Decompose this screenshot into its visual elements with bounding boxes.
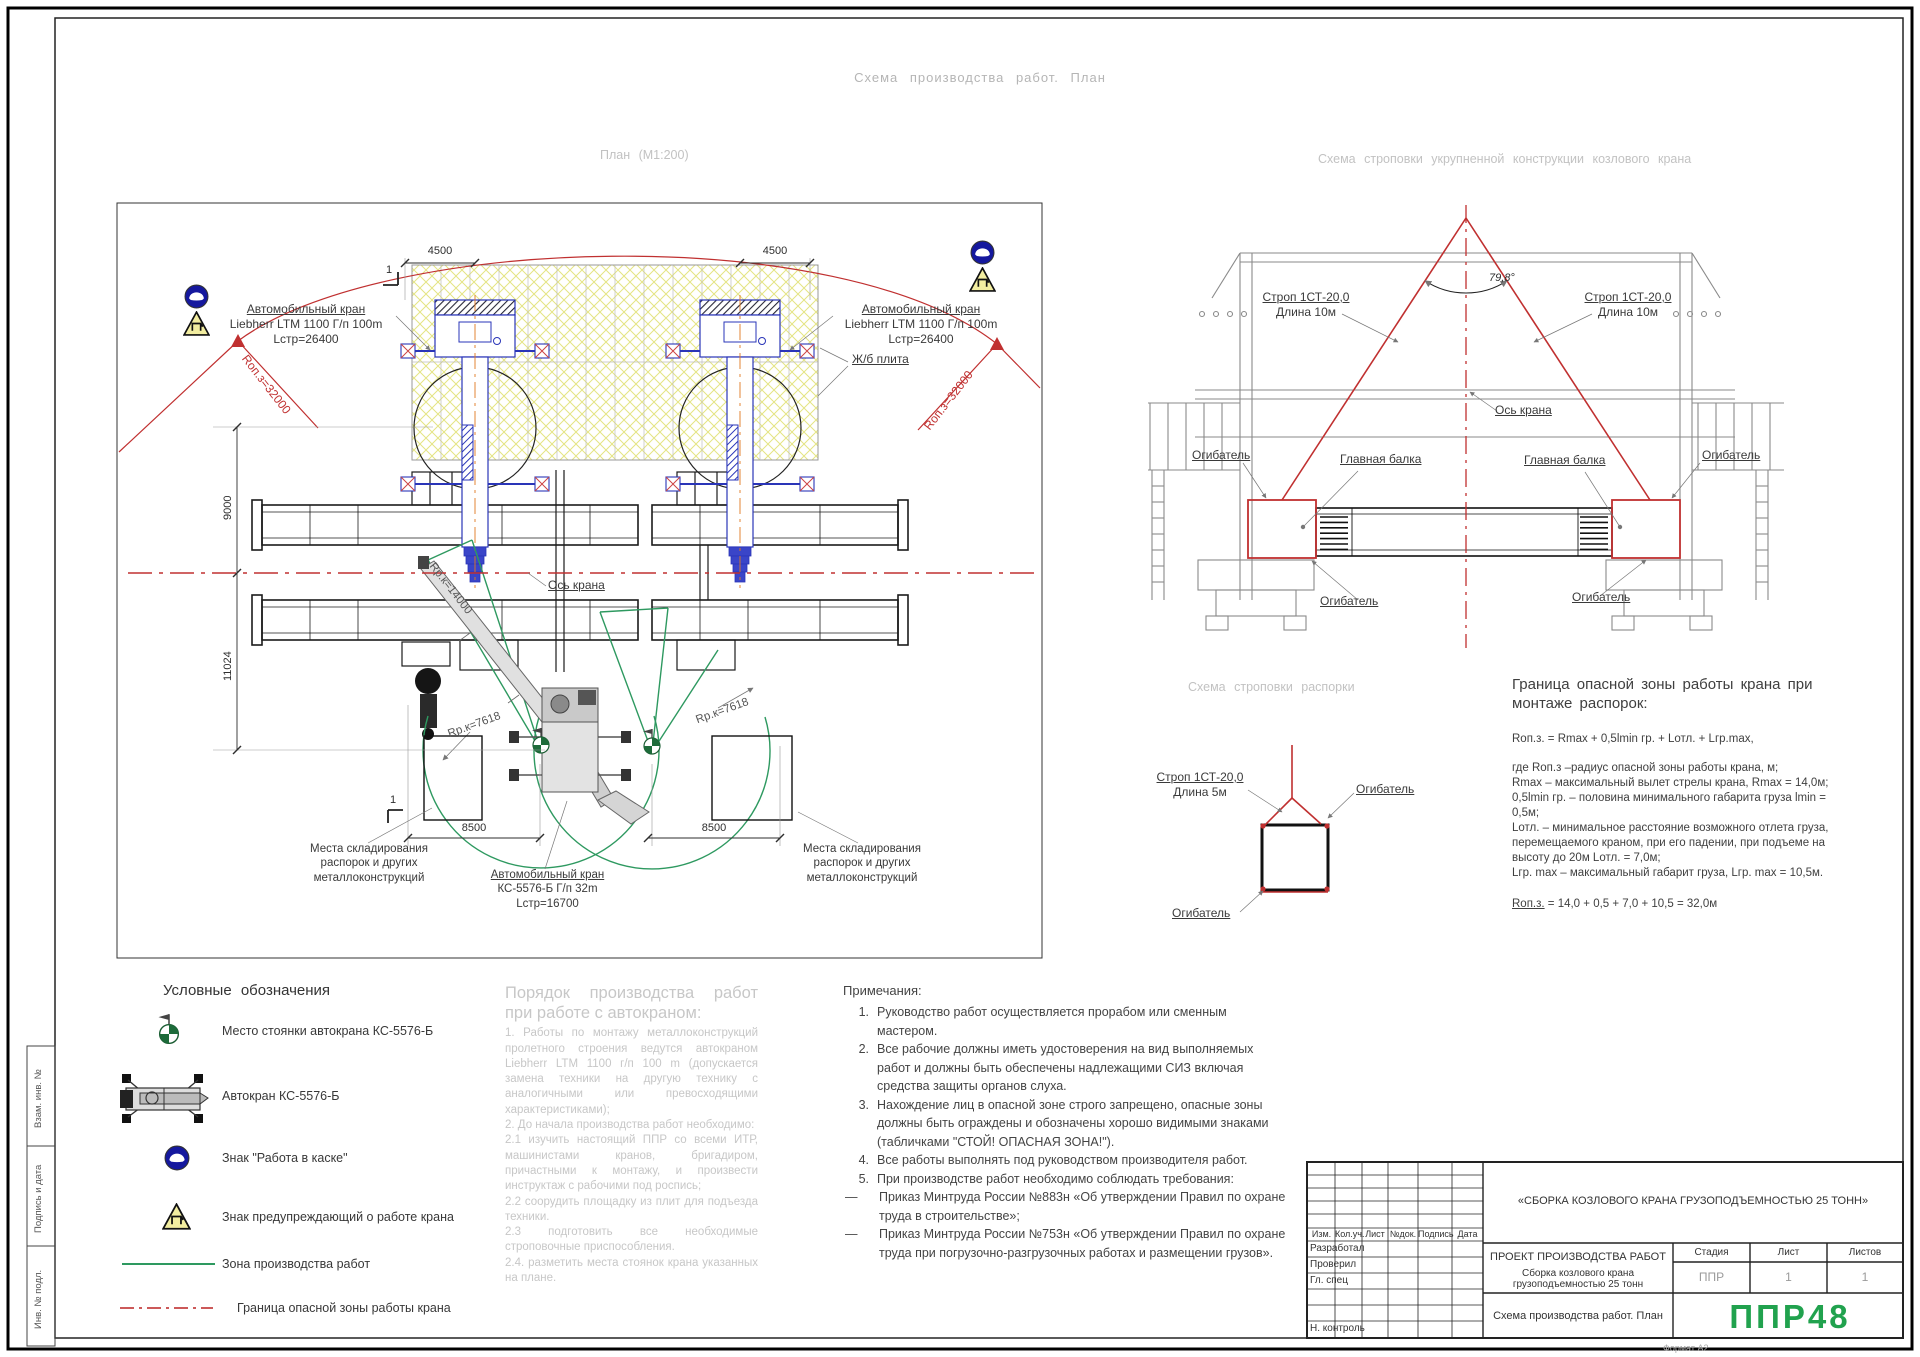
wrap-label-top-right: Огибатель bbox=[1702, 448, 1760, 463]
notes-block: Примечания: 1.Руководство работ осуществ… bbox=[843, 983, 1287, 1262]
sling-scheme bbox=[1148, 205, 1784, 648]
dim-4500-left: 4500 bbox=[405, 245, 475, 259]
danger-result-value: = 14,0 + 0,5 + 7,0 + 10,5 = 32,0м bbox=[1545, 898, 1718, 910]
main-beam bbox=[1316, 508, 1612, 556]
spacer-wrap-label-right: Огибатель bbox=[1356, 782, 1414, 797]
plan-view-title: План (М1:200) bbox=[600, 148, 689, 164]
sling-axis-label: Ось крана bbox=[1495, 403, 1552, 418]
sheet-main-title: Схема производства работ. План bbox=[800, 70, 1160, 86]
sheet-name: Схема производства работ. План bbox=[1483, 1310, 1673, 1322]
sling-scheme-title: Схема строповки укрупненной конструкции … bbox=[1318, 152, 1691, 168]
helmet-sign-icon bbox=[185, 285, 208, 308]
notes-title: Примечания: bbox=[843, 983, 1287, 999]
dim-11024: 11024 bbox=[222, 651, 236, 681]
section-mark-top: 1 bbox=[386, 264, 392, 278]
sling-rigging bbox=[1248, 205, 1680, 648]
section-marks bbox=[383, 272, 403, 823]
danger-zone-text: Граница опасной зоны работы крана при мо… bbox=[1512, 676, 1912, 912]
main-beam-label-left: Главная балка bbox=[1340, 452, 1421, 467]
col-koluch: Кол.уч. bbox=[1335, 1229, 1362, 1239]
dim-4500-right: 4500 bbox=[740, 245, 810, 259]
ppr48-logo: ППР48 bbox=[1700, 1298, 1880, 1336]
col-ndok: №док. bbox=[1388, 1229, 1418, 1239]
stage-value: ППР bbox=[1673, 1270, 1750, 1284]
row-proveril: Проверил bbox=[1310, 1259, 1356, 1270]
section-mark-bottom: 1 bbox=[390, 794, 396, 808]
plan-axis-label: Ось крана bbox=[548, 578, 605, 593]
list-label: Лист bbox=[1750, 1247, 1827, 1258]
dim-8500-left: 8500 bbox=[424, 822, 524, 836]
wrap-label-bottom-left: Огибатель bbox=[1320, 594, 1378, 609]
sling-leaders bbox=[1243, 314, 1700, 600]
crane-warning-sign-icon bbox=[970, 268, 995, 291]
stage-label: Стадия bbox=[1673, 1247, 1750, 1258]
project-name: «СБОРКА КОЗЛОВОГО КРАНА ГРУЗОПОДЪЕМНОСТЬ… bbox=[1483, 1195, 1903, 1207]
auto-crane-label-right: Автомобильный кран Liebherr LTM 1100 Г/п… bbox=[830, 302, 1012, 347]
col-list: Лист bbox=[1362, 1229, 1388, 1239]
listov-value: 1 bbox=[1827, 1270, 1903, 1284]
margin-box-vzam: Взам. инв. № bbox=[33, 1069, 45, 1128]
storage-label-right: Места складирования распорок и других ме… bbox=[798, 842, 926, 885]
col-data: Дата bbox=[1452, 1229, 1483, 1239]
crane-warning-sign-icon bbox=[163, 1204, 190, 1229]
wrap-label-bottom-right: Огибатель bbox=[1572, 590, 1630, 605]
legend-item-helmet: Знак "Работа в каске" bbox=[222, 1151, 348, 1167]
spacer-sling-label: Строп 1СТ-20,0 Длина 5м bbox=[1150, 770, 1250, 800]
listov-label: Листов bbox=[1827, 1247, 1903, 1258]
slab-label: Ж/б плита bbox=[852, 352, 909, 367]
sling-label-right: Строп 1СТ-20,0 Длина 10м bbox=[1577, 290, 1679, 320]
order-title: Порядок производства работ при работе с … bbox=[505, 983, 758, 1023]
doc-type-line2: Сборка козлового крана грузоподъемностью… bbox=[1483, 1268, 1673, 1290]
helmet-sign-icon bbox=[971, 241, 994, 264]
wrap-label-top-left: Огибатель bbox=[1192, 448, 1250, 463]
helmet-sign-icon bbox=[165, 1146, 189, 1170]
legend-icons bbox=[120, 1014, 215, 1308]
doc-type-line1: ПРОЕКТ ПРОИЗВОДСТВА РАБОТ bbox=[1483, 1251, 1673, 1263]
row-nkontrol: Н. контроль bbox=[1310, 1323, 1365, 1334]
col-izm: Изм. bbox=[1308, 1229, 1335, 1239]
drawing-sheet: Схема производства работ. План План (М1:… bbox=[0, 0, 1920, 1357]
spacer-wrap-label-bottom: Огибатель bbox=[1172, 906, 1230, 921]
sling-label-left: Строп 1СТ-20,0 Длина 10м bbox=[1255, 290, 1357, 320]
margin-box-podpis: Подпись и дата bbox=[33, 1165, 45, 1233]
legend-item-station: Место стоянки автокрана КС-5576-Б bbox=[222, 1024, 433, 1040]
dim-9000: 9000 bbox=[222, 496, 236, 520]
margin-box-inv: Инв. № подл. bbox=[33, 1270, 45, 1329]
spacer-scheme-title: Схема строповки распорки bbox=[1188, 680, 1355, 696]
crane-warning-sign-icon bbox=[184, 312, 209, 335]
legend-item-boundary: Граница опасной зоны работы крана bbox=[237, 1301, 451, 1317]
legend-title: Условные обозначения bbox=[163, 982, 330, 1001]
list-value: 1 bbox=[1750, 1270, 1827, 1284]
legend-item-crane: Автокран КС-5576-Б bbox=[222, 1089, 340, 1105]
row-razrabotal: Разработал bbox=[1310, 1243, 1364, 1254]
row-glspec: Гл. спец bbox=[1310, 1275, 1348, 1286]
col-podpis: Подпись bbox=[1418, 1229, 1452, 1239]
order-of-works: Порядок производства работ при работе с … bbox=[505, 983, 758, 1286]
main-beam-label-right: Главная балка bbox=[1524, 453, 1605, 468]
legend-item-zone: Зона производства работ bbox=[222, 1257, 370, 1273]
storage-label-left: Места складирования распорок и других ме… bbox=[305, 842, 433, 885]
auto-crane-label-left: Автомобильный кран Liebherr LTM 1100 Г/п… bbox=[215, 302, 397, 347]
spacer-sling-scheme bbox=[1240, 745, 1354, 912]
ks-crane-label: Автомобильный кран КС-5576-Б Г/п 32m Lст… bbox=[485, 868, 610, 911]
sling-angle-label: 79,8° bbox=[1489, 272, 1515, 286]
format-note: Формат А2 bbox=[1663, 1343, 1708, 1353]
dim-8500-right: 8500 bbox=[664, 822, 764, 836]
danger-result-label: Rоп.з. bbox=[1512, 898, 1545, 910]
station-symbol-icon bbox=[159, 1014, 179, 1043]
legend-item-warning: Знак предупреждающий о работе крана bbox=[222, 1210, 454, 1226]
ks-crane-legend-icon bbox=[120, 1074, 208, 1123]
